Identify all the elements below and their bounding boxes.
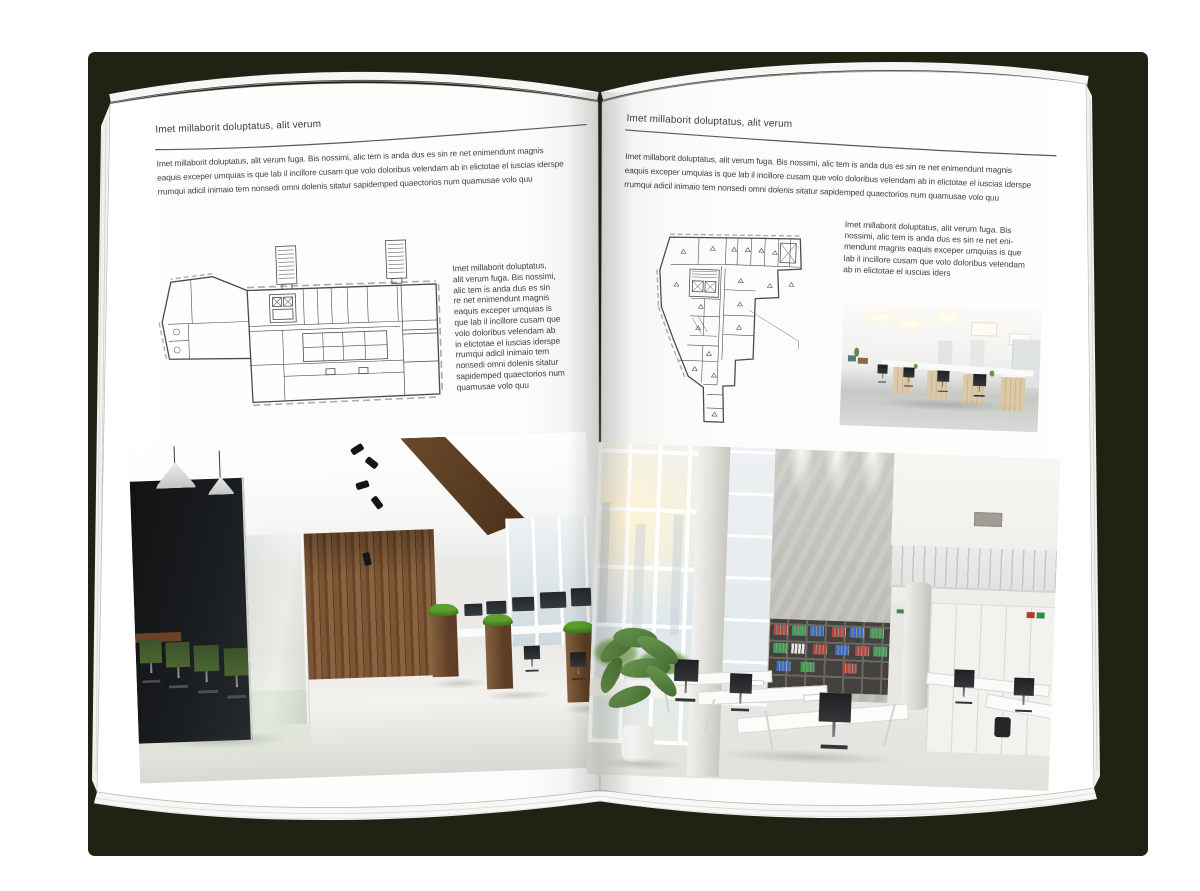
office-chair — [524, 646, 541, 673]
office-chair — [937, 371, 950, 392]
office-chair — [1013, 678, 1034, 713]
floor-shadow — [870, 396, 1020, 413]
binder-row — [773, 643, 787, 654]
exit-sign — [1037, 612, 1045, 618]
floor-shadow — [717, 747, 897, 768]
wall-washer-light — [787, 449, 815, 498]
monitor — [486, 601, 506, 615]
green-office-chair — [193, 645, 220, 694]
monitor — [540, 592, 567, 609]
binder-row — [774, 625, 788, 636]
binder-row — [776, 661, 790, 672]
binder-row — [873, 646, 887, 657]
binder-row — [813, 644, 827, 655]
brochure-mockup: Imet millaborit doluptatus, alit verum I… — [0, 0, 1200, 891]
vent-grille — [974, 512, 1002, 527]
left-page: Imet millaborit doluptatus, alit verum I… — [115, 43, 623, 821]
office-chair — [729, 673, 752, 712]
floor-plan-right — [647, 224, 839, 436]
waste-bin — [994, 717, 1011, 738]
ceiling-light — [938, 315, 957, 321]
binder-row — [870, 628, 884, 639]
planter-box — [485, 623, 513, 690]
binder-row — [855, 646, 869, 657]
exit-sign — [897, 609, 904, 613]
binder-row — [791, 643, 805, 654]
ceiling-light — [870, 314, 889, 320]
glass-panel — [246, 534, 311, 726]
page-stack-left — [92, 104, 110, 792]
binder-row — [810, 626, 824, 637]
monitor — [464, 604, 482, 617]
office-photo-workstations — [839, 303, 1041, 432]
right-page: Imet millaborit doluptatus, alit verum I… — [573, 52, 1093, 840]
side-text-column: Imet millaborit doluptatus, alit verum f… — [843, 219, 1055, 283]
planter-box — [431, 612, 459, 677]
light-panel — [971, 322, 997, 337]
fire-sign — [1027, 612, 1035, 618]
floor-shadow — [429, 677, 489, 689]
binder-row — [842, 663, 856, 674]
wall-washer-light — [859, 452, 887, 501]
green-office-chair — [165, 642, 191, 689]
office-photo-wood-glass — [129, 432, 598, 784]
office-photo-atrium — [587, 442, 1061, 791]
binder-row — [835, 645, 849, 656]
binder-row — [800, 662, 814, 673]
office-chair — [877, 364, 888, 382]
green-office-chair — [224, 648, 250, 699]
intro-paragraph: Imet millaborit doluptatus, alit verum f… — [156, 142, 564, 198]
plant — [854, 347, 859, 356]
floor-shadow — [603, 757, 683, 772]
floor-plan-left — [149, 218, 456, 428]
binder-row — [850, 628, 864, 639]
office-chair — [953, 669, 974, 704]
office-chair — [673, 659, 699, 702]
monitor — [512, 597, 534, 612]
binder-row — [832, 627, 846, 638]
lounge-sofa — [858, 358, 868, 364]
ceiling-light — [900, 321, 919, 327]
binder-row — [792, 625, 806, 636]
plant — [989, 370, 994, 376]
meeting-room-glass — [130, 478, 253, 744]
office-chair — [818, 692, 852, 749]
wall-washer-light — [823, 450, 851, 499]
office-chair — [903, 367, 915, 386]
wood-wall — [304, 529, 439, 679]
office-chair — [973, 374, 987, 397]
intro-paragraph: Imet millaborit doluptatus, alit verum f… — [624, 149, 1032, 206]
side-text-column: Imet millaborit doluptatus, alit verum f… — [452, 259, 592, 393]
green-office-chair — [139, 639, 163, 684]
